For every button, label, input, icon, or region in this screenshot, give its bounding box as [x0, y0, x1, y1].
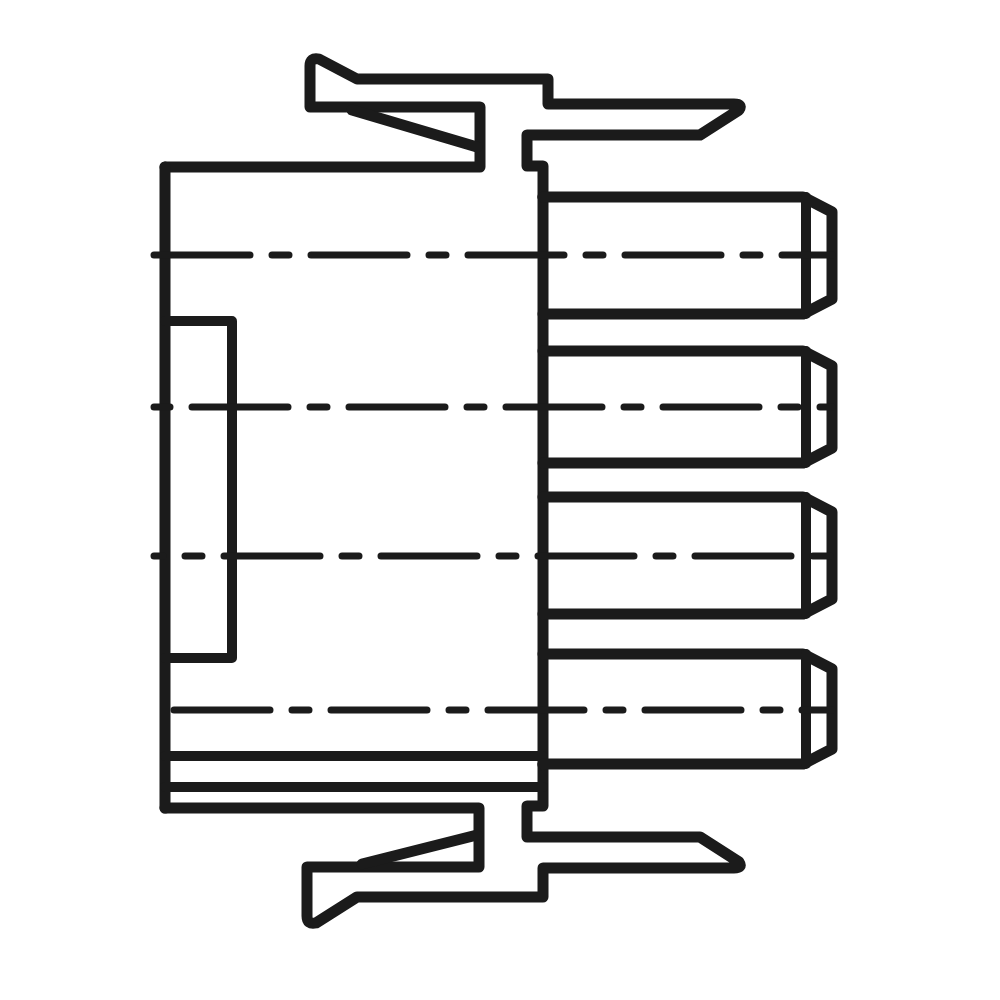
drawing-background [0, 0, 1000, 1000]
connector-drawing-svg [0, 0, 1000, 1000]
drawing-page [0, 0, 1000, 1000]
